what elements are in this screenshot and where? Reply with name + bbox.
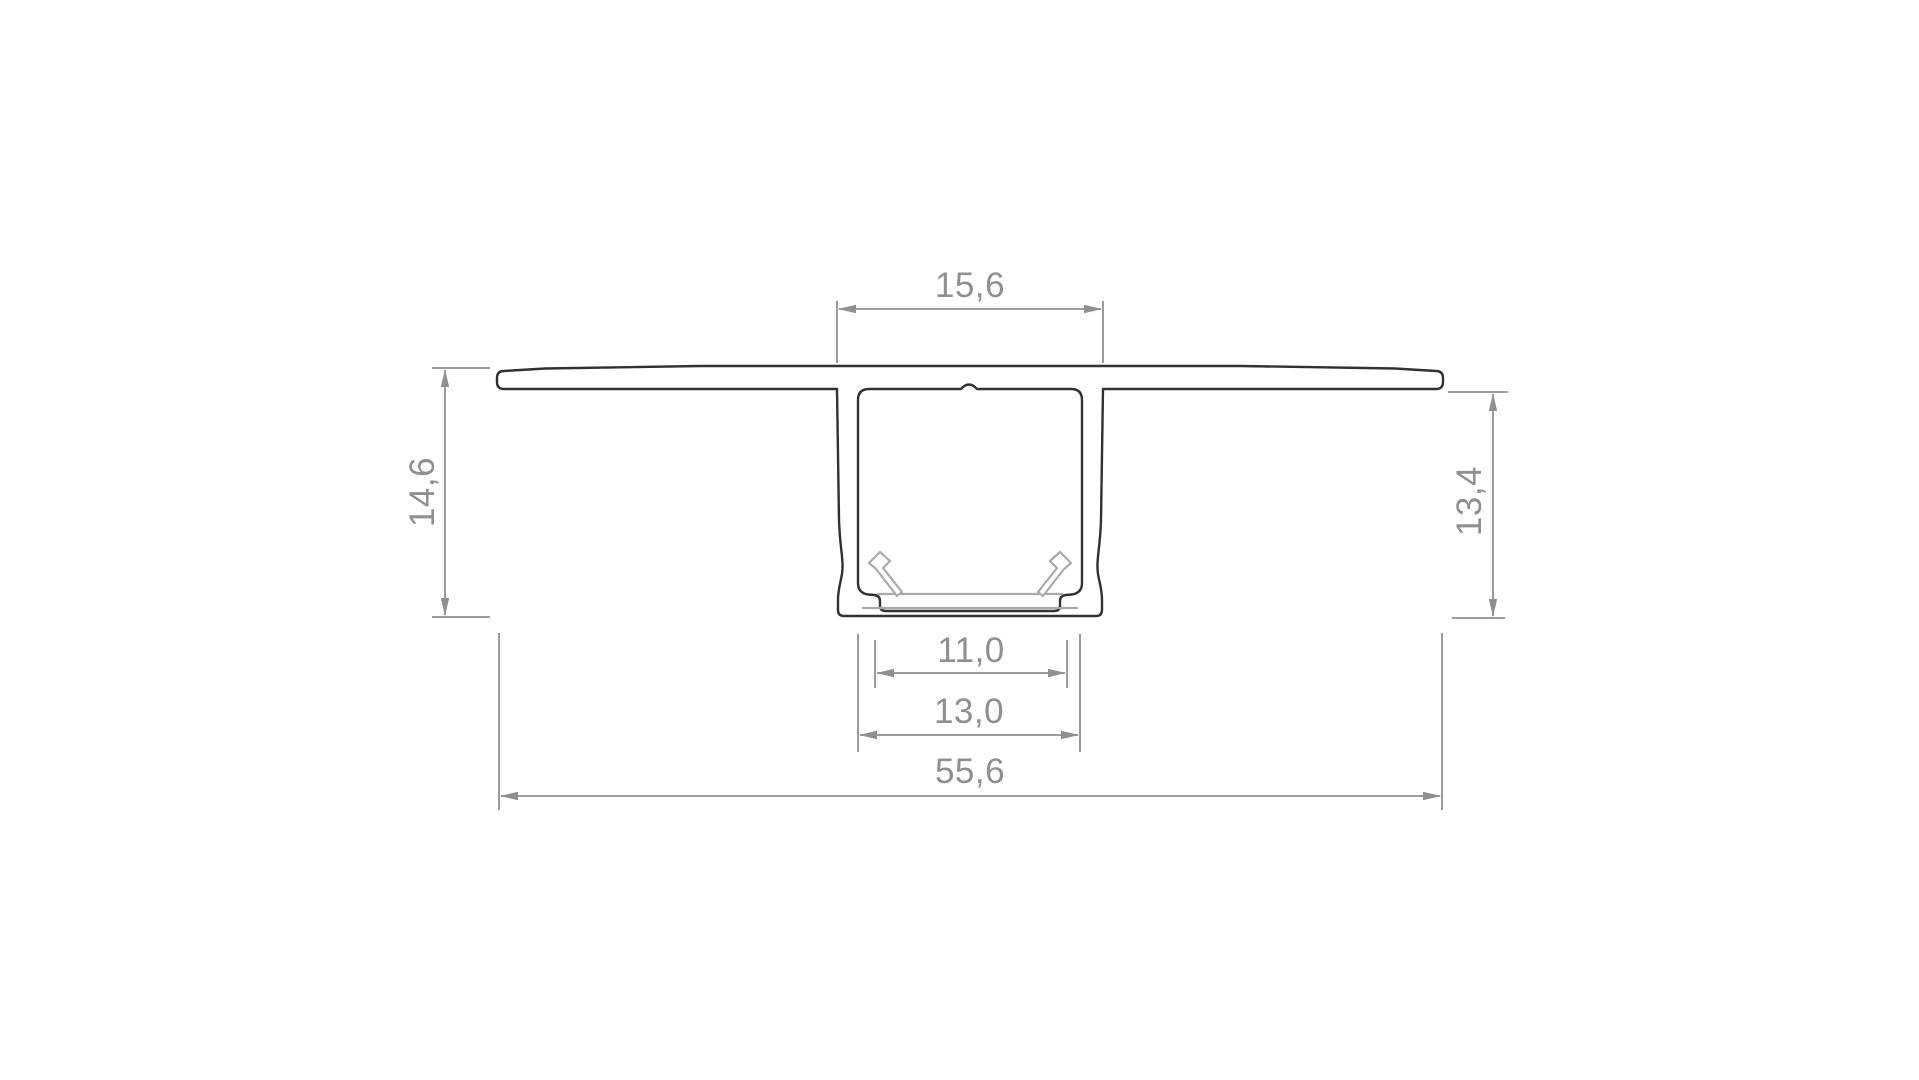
dimension-top-width: 15,6 <box>837 266 1103 363</box>
dimension-label-overall-width: 55,6 <box>935 752 1005 791</box>
dimension-label-body-height: 13,4 <box>1450 466 1489 536</box>
arrowhead-right <box>1423 792 1441 800</box>
dimension-label-led-seat-width: 11,0 <box>937 631 1005 670</box>
arrowhead-down <box>441 598 449 616</box>
arrowhead-left <box>838 305 856 313</box>
technical-drawing: 15,6 14,6 13,4 11,0 13,0 <box>0 0 1919 1080</box>
arrowhead-up <box>441 369 449 387</box>
arrowhead-right <box>1084 305 1102 313</box>
arrowhead-left <box>859 731 877 739</box>
arrowhead-left <box>876 669 894 677</box>
arrowhead-right <box>1048 669 1066 677</box>
dimension-label-channel-inner-width: 13,0 <box>934 692 1004 731</box>
dimension-body-height: 13,4 <box>1448 392 1508 618</box>
profile-outline <box>497 366 1443 616</box>
arrowhead-down <box>1489 599 1497 617</box>
arrowhead-left <box>500 792 518 800</box>
arrowhead-right <box>1061 731 1079 739</box>
profile-channel-cavity <box>858 385 1082 612</box>
dimension-label-overall-height: 14,6 <box>403 457 442 527</box>
arrowhead-up <box>1489 393 1497 411</box>
dimension-overall-height: 14,6 <box>403 368 490 617</box>
dimension-label-top-width: 15,6 <box>935 266 1005 305</box>
dimension-led-seat-width: 11,0 <box>875 631 1067 688</box>
